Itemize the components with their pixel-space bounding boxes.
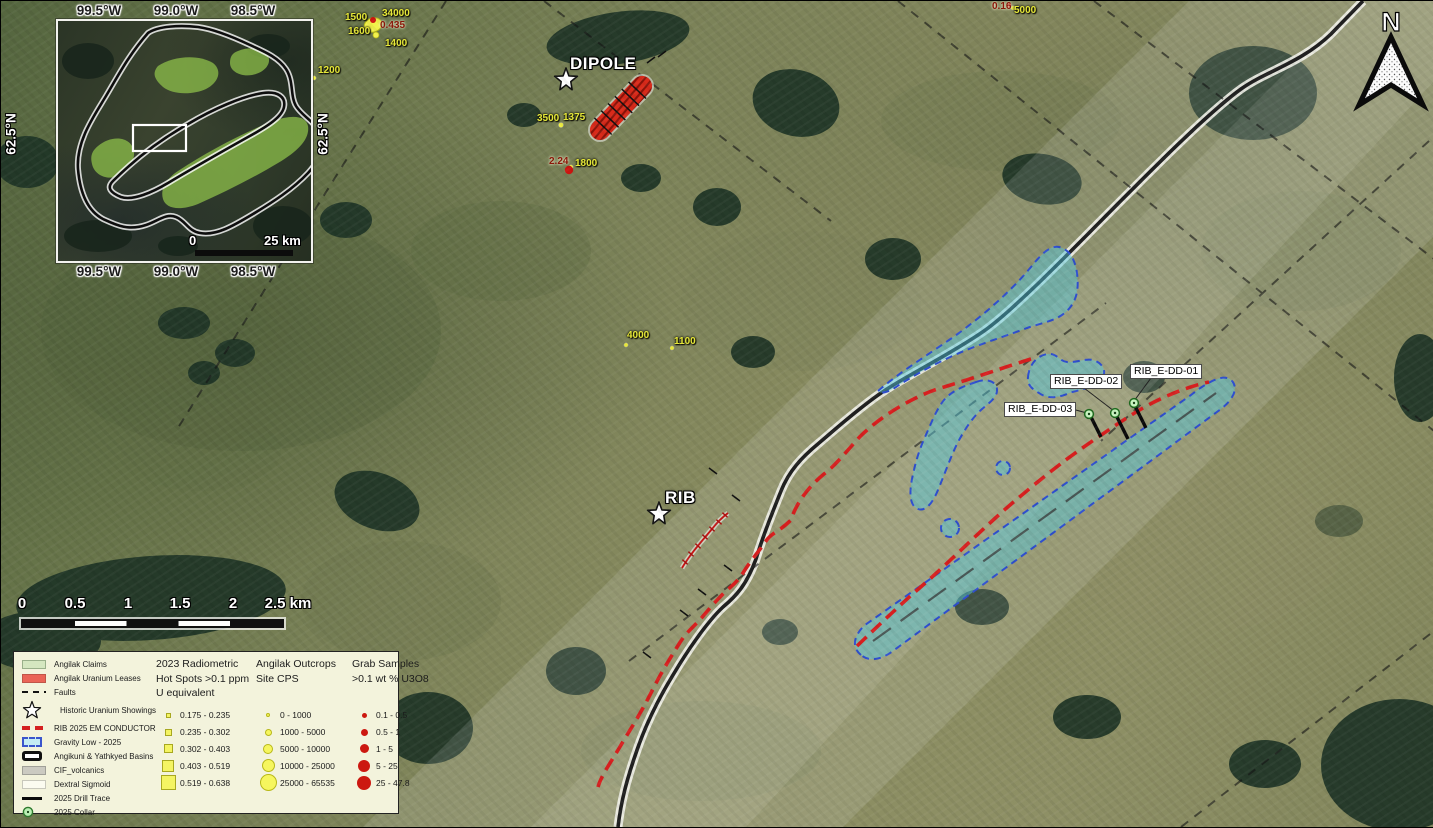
leases-swatch-icon — [22, 674, 46, 683]
spot-label: 3500 — [537, 114, 559, 124]
legend-item: CIF_volcanics — [20, 763, 152, 777]
legend-item-label: Angikuni & Yathkyed Basins — [54, 752, 153, 761]
fault-dash-icon — [22, 691, 46, 694]
legend-item: 2025 Collar — [20, 805, 152, 819]
legend-class-label: 10000 - 25000 — [280, 761, 335, 771]
hotspot-square-icon — [164, 744, 173, 753]
legend-class-label: 1 - 5 — [376, 744, 393, 754]
legend-radiometric-column: 2023 Radiometric Hot Spots >0.1 ppm U eq… — [156, 657, 252, 810]
legend-class-label: 5000 - 10000 — [280, 744, 330, 754]
legend-class-label: 25 - 47.8 — [376, 778, 410, 788]
spot-label: 34000 — [382, 9, 410, 19]
outcrop-circle-icon — [265, 729, 272, 736]
uranium-lease-polygon — [594, 82, 646, 135]
inset-scale-bar — [195, 250, 293, 256]
legend-item-label: CIF_volcanics — [54, 766, 104, 775]
legend-class-label: 0.5 - 1 — [376, 727, 400, 737]
legend-item: Dextral Sigmoid — [20, 777, 152, 791]
basins-outline-icon — [22, 751, 42, 761]
drill-hole-label: RIB_E-DD-02 — [1050, 374, 1122, 389]
legend-class-row: 5 - 25 — [352, 757, 432, 774]
legend-class-row: 0.5 - 1 — [352, 724, 432, 741]
scale-tick-label: 2 — [229, 595, 237, 612]
outcrop-circle-icon — [262, 759, 275, 772]
inset-longitude-label: 99.5°W — [77, 264, 121, 279]
station-stars — [555, 68, 671, 524]
scale-tick-label: 1.5 — [170, 595, 191, 612]
legend-grab-title: Grab Samples >0.1 wt % U3O8 — [352, 657, 432, 705]
legend-class-label: 0.235 - 0.302 — [180, 727, 230, 737]
grab-circle-icon — [362, 713, 367, 718]
station-label-dipole: DIPOLE — [570, 54, 636, 74]
hotspot-square-icon — [165, 729, 172, 736]
legend-item: Faults — [20, 685, 152, 699]
legend-class-label: 0.302 - 0.403 — [180, 744, 230, 754]
volcanics-swatch-icon — [22, 766, 46, 775]
grab-circle-icon — [361, 729, 368, 736]
legend-class-row: 0.519 - 0.638 — [156, 774, 252, 791]
inset-latitude-label: 62.5°N — [316, 113, 331, 154]
legend-class-label: 0.403 - 0.519 — [180, 761, 230, 771]
spot-label: 1100 — [674, 337, 696, 347]
spot-label: 1200 — [318, 66, 340, 76]
legend-item-label: Faults — [54, 688, 76, 697]
legend-class-label: 5 - 25 — [376, 761, 398, 771]
legend-item: Angilak Claims — [20, 657, 152, 671]
legend-item-label: 2025 Drill Trace — [54, 794, 110, 803]
legend-item-label: Historic Uranium Showings — [60, 706, 156, 715]
star-icon — [22, 700, 43, 720]
scale-tick-label: 1 — [124, 595, 132, 612]
scale-bar-segments — [21, 619, 284, 628]
drill-hole-label: RIB_E-DD-03 — [1004, 402, 1076, 417]
outcrop-circle-icon — [263, 744, 273, 754]
collar-icon — [22, 806, 34, 818]
legend-item: Angikuni & Yathkyed Basins — [20, 749, 152, 763]
legend-class-row: 25 - 47.8 — [352, 774, 432, 791]
inset-longitude-label: 98.5°W — [231, 264, 275, 279]
station-label-rib: RIB — [665, 488, 696, 508]
grab-circle-icon — [358, 760, 370, 772]
legend-item-label: Gravity Low - 2025 — [54, 738, 121, 747]
spot-label: 1500 — [345, 13, 367, 23]
drill-trace-icon — [22, 797, 42, 800]
inset-longitude-label: 99.0°W — [154, 264, 198, 279]
spot-label: 2.24 — [549, 157, 568, 167]
inset-longitude-label: 98.5°W — [231, 3, 275, 18]
legend-class-row: 0 - 1000 — [256, 707, 348, 724]
legend-class-row: 25000 - 65535 — [256, 774, 348, 791]
legend-radiometric-title: 2023 Radiometric Hot Spots >0.1 ppm U eq… — [156, 657, 252, 705]
inset-scale-zero: 0 — [189, 233, 196, 248]
legend-class-label: 0.519 - 0.638 — [180, 778, 230, 788]
drill-hole-label: RIB_E-DD-01 — [1130, 364, 1202, 379]
outcrop-circle-icon — [260, 774, 277, 791]
legend-class-label: 0 - 1000 — [280, 710, 311, 720]
legend-item-label: Angilak Claims — [54, 660, 107, 669]
legend-item: 2025 Drill Trace — [20, 791, 152, 805]
hotspot-square-icon — [161, 775, 176, 790]
legend-outcrops-title: Angilak Outcrops Site CPS — [256, 657, 348, 705]
inset-graphics — [58, 21, 311, 261]
legend-item: Angilak Uranium Leases — [20, 671, 152, 685]
legend-class-label: 25000 - 65535 — [280, 778, 335, 788]
scale-tick-label: 0 — [18, 595, 26, 612]
north-arrow-icon — [1359, 37, 1423, 105]
scale-tick-label: 0.5 — [65, 595, 86, 612]
legend: Angilak ClaimsAngilak Uranium LeasesFaul… — [13, 651, 399, 814]
inset-claims-patches — [91, 48, 308, 208]
north-arrow: N — [1353, 3, 1433, 118]
inset-scale-text: 25 km — [264, 233, 301, 248]
spot-label: 5000 — [1014, 6, 1036, 16]
spot-label: 0.435 — [380, 21, 405, 31]
legend-item: Historic Uranium Showings — [20, 699, 152, 721]
grab-circle-icon — [357, 776, 371, 790]
spot-label: 1400 — [385, 39, 407, 49]
hotspot-square-icon — [166, 713, 171, 718]
claims-swatch-icon — [22, 660, 46, 669]
sigmoid-swatch-icon — [22, 780, 46, 789]
em-conductor-dash-icon — [22, 726, 46, 730]
gravity-low-icon — [22, 737, 42, 747]
inset-latitude-label: 62.5°N — [4, 113, 19, 154]
legend-outcrops-column: Angilak Outcrops Site CPS 0 - 10001000 -… — [256, 657, 348, 810]
legend-class-label: 0.175 - 0.235 — [180, 710, 230, 720]
legend-item-label: RIB 2025 EM CONDUCTOR — [54, 724, 156, 733]
hotspot-square-icon — [162, 760, 174, 772]
legend-item-label: Dextral Sigmoid — [54, 780, 110, 789]
legend-class-label: 1000 - 5000 — [280, 727, 325, 737]
legend-class-row: 5000 - 10000 — [256, 741, 348, 758]
legend-item: RIB 2025 EM CONDUCTOR — [20, 721, 152, 735]
legend-item-label: 2025 Collar — [54, 808, 95, 817]
inset-longitude-label: 99.5°W — [77, 3, 121, 18]
legend-item-label: Angilak Uranium Leases — [54, 674, 141, 683]
spot-label: 1375 — [563, 113, 585, 123]
legend-class-row: 0.175 - 0.235 — [156, 707, 252, 724]
legend-class-row: 0.1 - 0.5 — [352, 707, 432, 724]
legend-grab-column: Grab Samples >0.1 wt % U3O8 0.1 - 0.50.5… — [352, 657, 432, 810]
legend-class-row: 0.302 - 0.403 — [156, 741, 252, 758]
legend-class-row: 10000 - 25000 — [256, 757, 348, 774]
inset-longitude-label: 99.0°W — [154, 3, 198, 18]
spot-label: 0.16 — [992, 2, 1011, 12]
grab-circle-icon — [360, 744, 369, 753]
spot-label: 1600 — [348, 27, 370, 37]
scale-tick-label: 2.5 km — [265, 595, 312, 612]
legend-class-row: 0.403 - 0.519 — [156, 757, 252, 774]
inset-overview-map[interactable]: 0 25 km — [56, 19, 313, 263]
spot-label: 4000 — [627, 331, 649, 341]
spot-label: 1800 — [575, 159, 597, 169]
legend-item: Gravity Low - 2025 — [20, 735, 152, 749]
outcrop-circle-icon — [266, 713, 270, 717]
legend-class-row: 1000 - 5000 — [256, 724, 348, 741]
map-canvas[interactable]: N 00.511.522.5 km — [0, 0, 1433, 828]
legend-symbol-list: Angilak ClaimsAngilak Uranium LeasesFaul… — [20, 657, 152, 810]
legend-class-row: 1 - 5 — [352, 741, 432, 758]
legend-class-row: 0.235 - 0.302 — [156, 724, 252, 741]
legend-class-label: 0.1 - 0.5 — [376, 710, 407, 720]
